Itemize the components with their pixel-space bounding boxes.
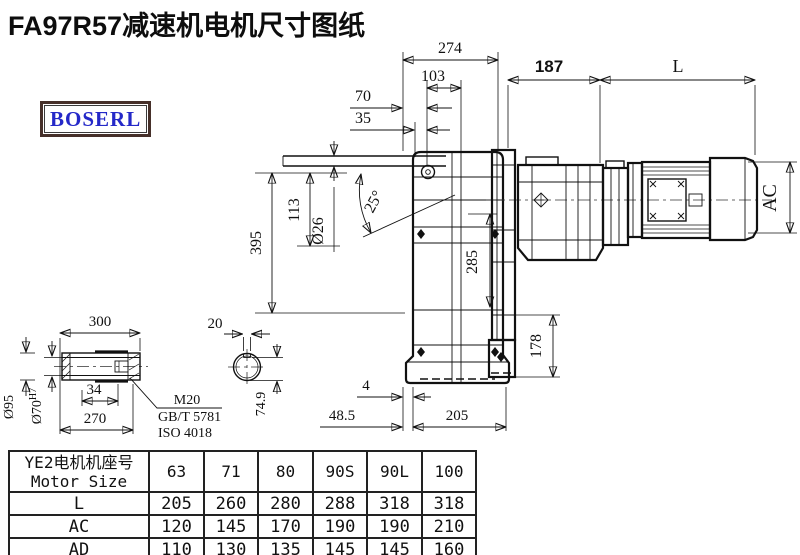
- cell: 190: [367, 515, 422, 538]
- cross-section-dimensions: 20 74.9: [208, 316, 284, 416]
- side-view-dimensions: 187 L AC: [508, 56, 797, 233]
- thread-callout-gbt: GB/T 5781: [158, 410, 221, 425]
- dim-395: 395: [248, 231, 265, 255]
- size-column-header: 80: [258, 451, 313, 492]
- size-column-header: 100: [422, 451, 476, 492]
- row-label: L: [9, 492, 149, 515]
- cell: 170: [258, 515, 313, 538]
- cell: 145: [367, 538, 422, 555]
- cell: 318: [367, 492, 422, 515]
- table-row-AC: AC 120 145 170 190 190 210: [9, 515, 476, 538]
- dim-dia70h7: Ø70H7: [28, 388, 45, 424]
- dim-205: 205: [446, 408, 469, 424]
- dim-angle-25: 25°: [361, 188, 387, 216]
- size-column-header: 90S: [313, 451, 367, 492]
- table-row-L: L 205 260 280 288 318 318: [9, 492, 476, 515]
- front-view-dimensions: 274 103 70 35 395 113 Ø26 25° 28: [248, 40, 560, 431]
- cell: 145: [313, 538, 367, 555]
- size-column-header: 71: [204, 451, 258, 492]
- size-column-header: 90L: [367, 451, 422, 492]
- shaft-cross-section: [228, 349, 266, 385]
- motor-size-table: YE2电机机座号 Motor Size 63 71 80 90S 90L 100…: [8, 450, 477, 555]
- thread-callout-iso: ISO 4018: [158, 426, 212, 441]
- hollow-shaft-detail: [54, 352, 148, 382]
- dim-187: 187: [535, 57, 563, 76]
- cell: 135: [258, 538, 313, 555]
- dim-20: 20: [208, 316, 223, 332]
- dim-74-9: 74.9: [254, 392, 269, 417]
- dim-4: 4: [362, 378, 370, 394]
- table-header-row: YE2电机机座号 Motor Size 63 71 80 90S 90L 100: [9, 451, 476, 492]
- cell: 190: [313, 515, 367, 538]
- dim-103: 103: [421, 68, 445, 85]
- cell: 130: [204, 538, 258, 555]
- row-label: AC: [9, 515, 149, 538]
- cell: 205: [149, 492, 204, 515]
- drawing-page: FA97R57减速机电机尺寸图纸 BOSERL: [0, 0, 800, 555]
- cell: 145: [204, 515, 258, 538]
- dim-178: 178: [528, 334, 545, 358]
- dim-dia95: Ø95: [2, 395, 17, 419]
- cell: 318: [422, 492, 476, 515]
- dim-L: L: [673, 56, 684, 76]
- header-cn: YE2电机机座号: [10, 453, 148, 472]
- dim-70: 70: [355, 88, 371, 105]
- cell: 280: [258, 492, 313, 515]
- dim-48-5: 48.5: [329, 408, 355, 424]
- dim-AC: AC: [759, 184, 781, 212]
- table-row-AD: AD 110 130 135 145 145 160: [9, 538, 476, 555]
- cell: 210: [422, 515, 476, 538]
- dim-34: 34: [87, 382, 103, 398]
- cell: 260: [204, 492, 258, 515]
- dim-35: 35: [355, 110, 371, 127]
- thread-callout-m20: M20: [174, 393, 200, 408]
- cell: 288: [313, 492, 367, 515]
- dim-285: 285: [464, 250, 481, 274]
- hollow-shaft-dimensions: 300 34 270 Ø95 Ø70H7 M20 GB/T 5781 ISO 4…: [2, 314, 222, 441]
- size-column-header: 63: [149, 451, 204, 492]
- cell: 160: [422, 538, 476, 555]
- dim-dia26: Ø26: [310, 217, 327, 245]
- dim-300: 300: [89, 314, 112, 330]
- dim-113: 113: [286, 198, 303, 221]
- dim-274: 274: [438, 40, 462, 57]
- table-header-motor-size: YE2电机机座号 Motor Size: [9, 451, 149, 492]
- dim-270: 270: [84, 411, 107, 427]
- cell: 110: [149, 538, 204, 555]
- header-en: Motor Size: [10, 472, 148, 491]
- cell: 120: [149, 515, 204, 538]
- row-label: AD: [9, 538, 149, 555]
